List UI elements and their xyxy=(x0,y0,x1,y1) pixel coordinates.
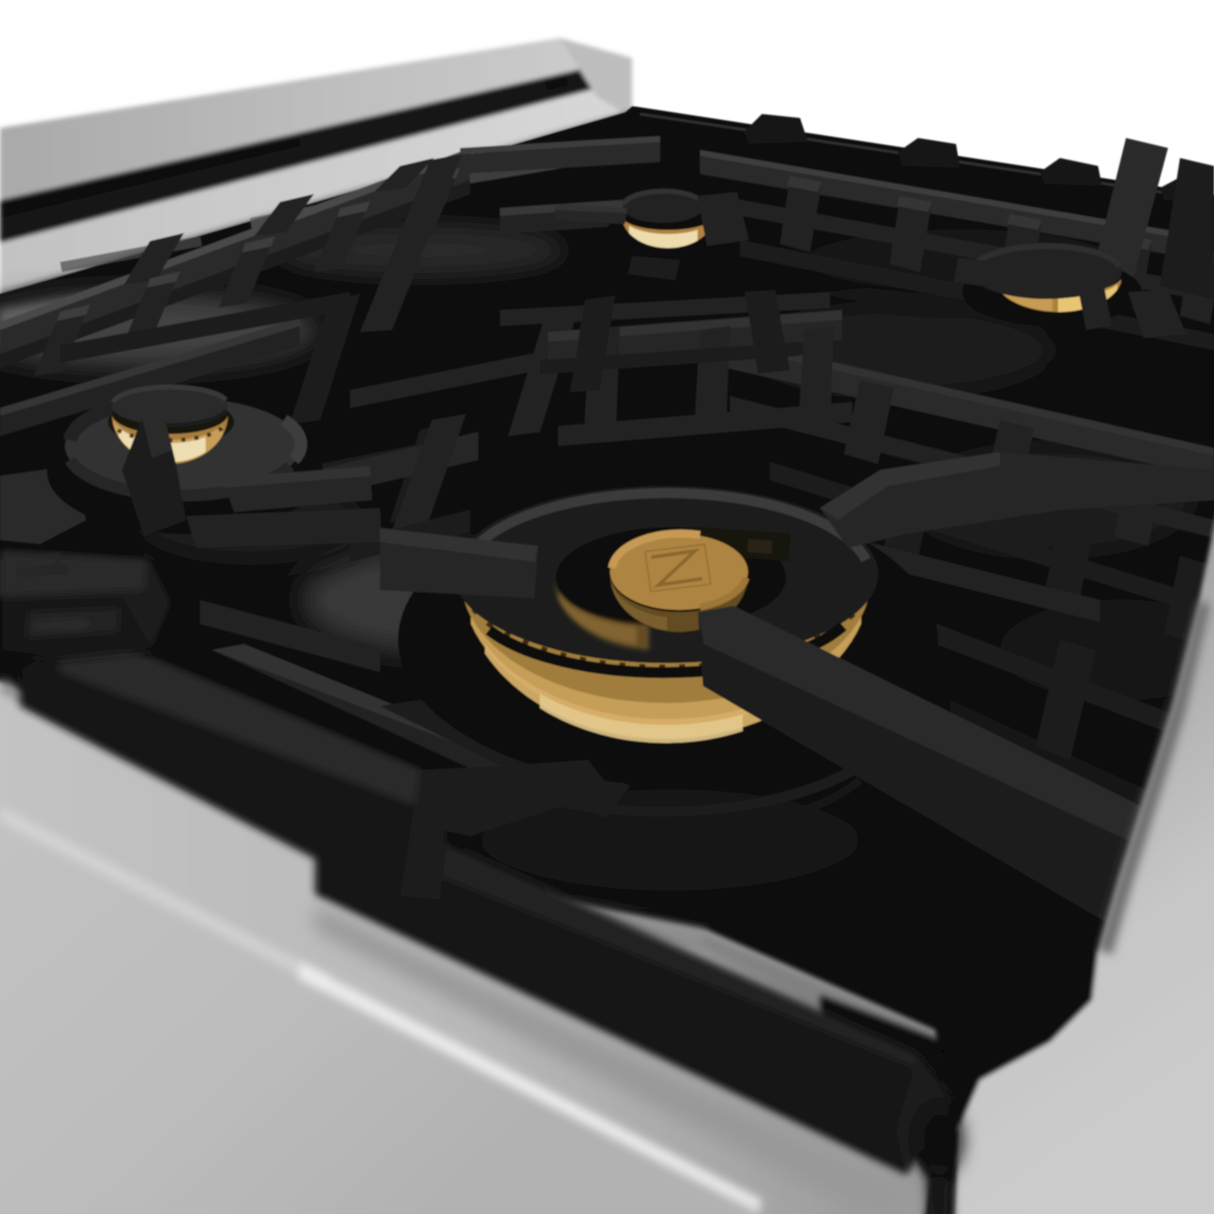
svg-text:outside: outside xyxy=(34,615,90,634)
